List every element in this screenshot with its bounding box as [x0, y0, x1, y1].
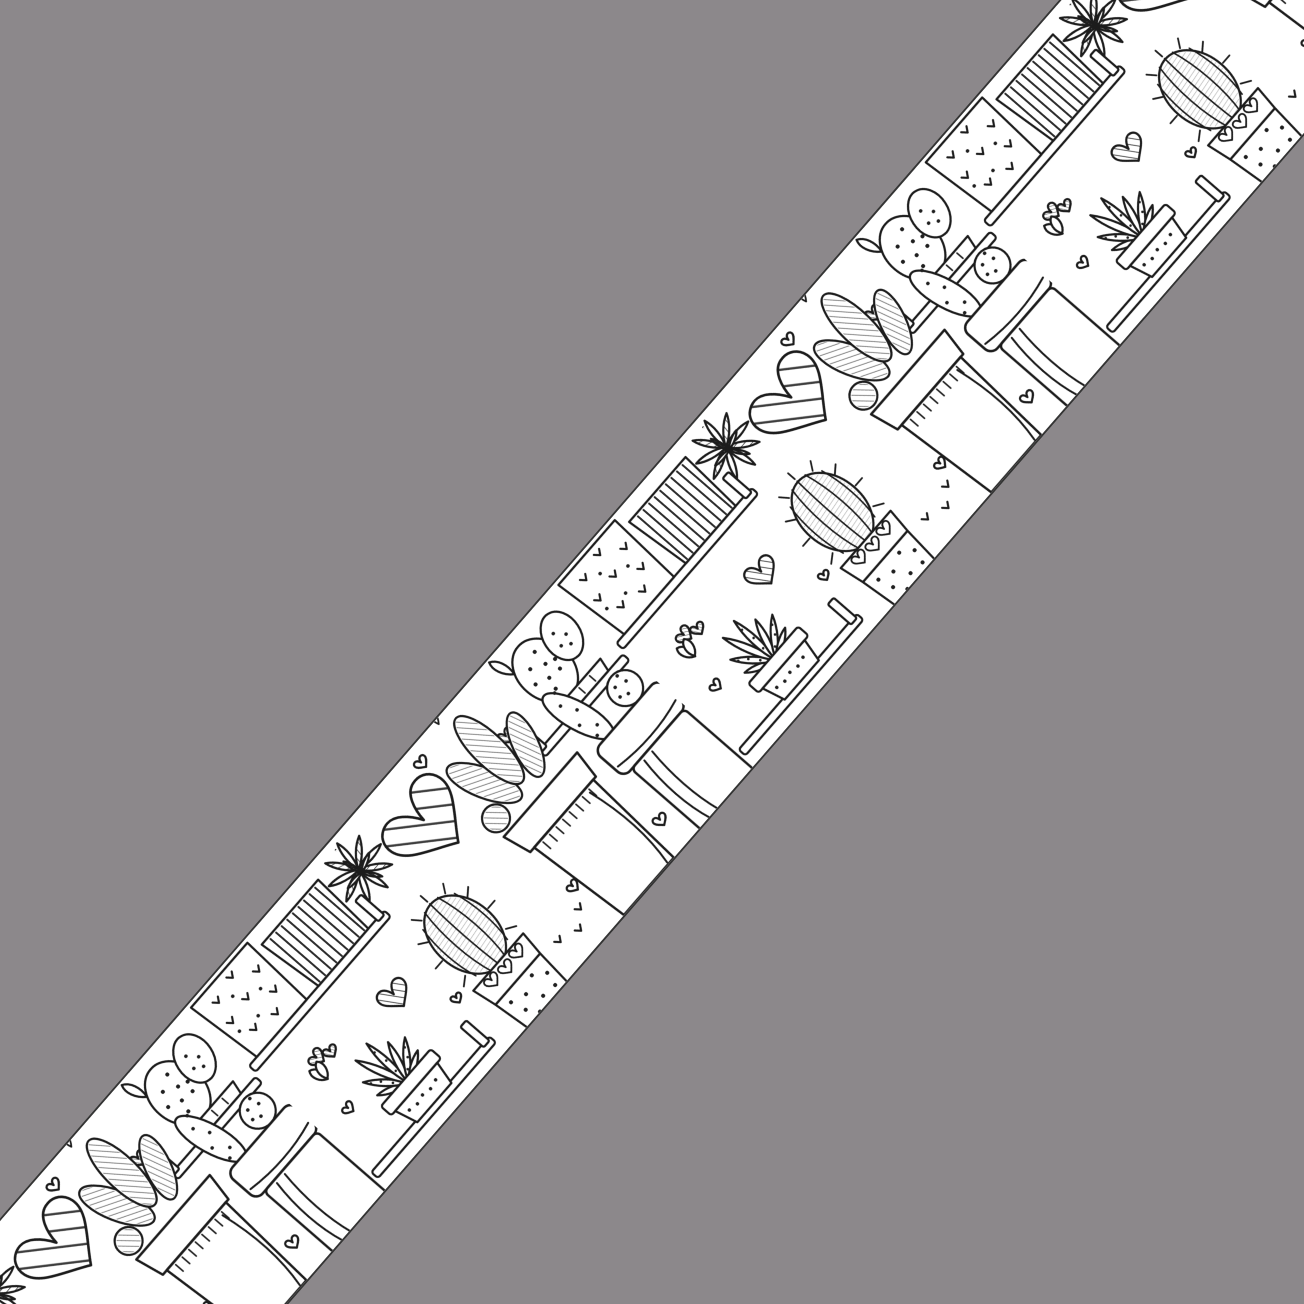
cactus-pattern-art: [0, 0, 1304, 1304]
background: [0, 0, 1304, 1304]
tape-pattern-fill: [0, 0, 1304, 1304]
tape-band: [0, 0, 1304, 1304]
